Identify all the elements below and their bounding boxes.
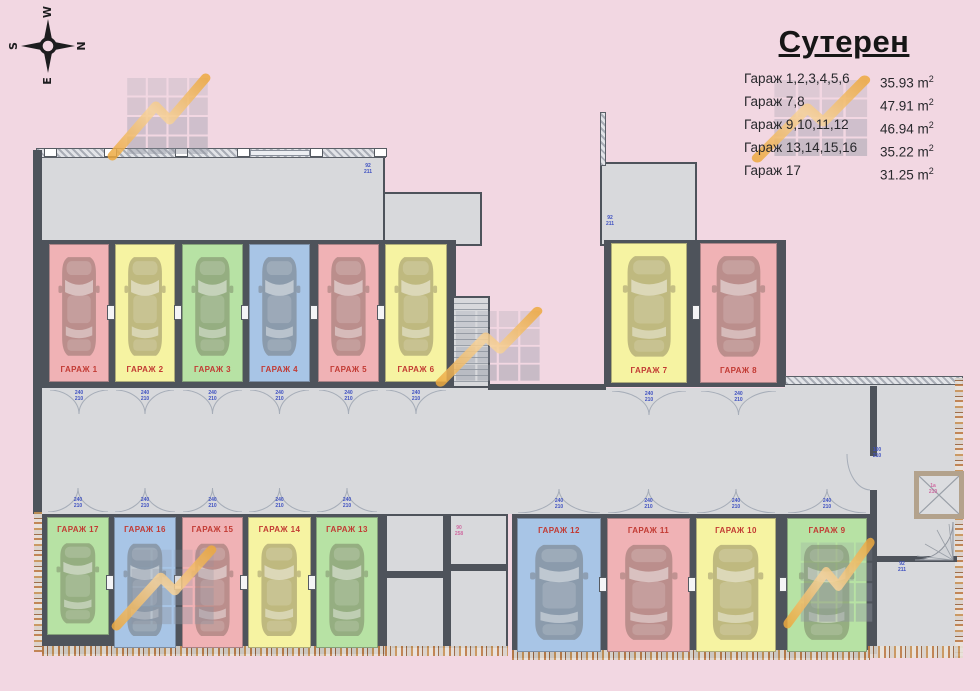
stall-divider-pillar xyxy=(174,305,182,320)
garage-door-dim-14: 240 210 xyxy=(267,498,293,509)
garage-stall-14: ГАРАЖ 14 xyxy=(248,517,311,648)
garage-stall-10: ГАРАЖ 10 xyxy=(696,518,776,652)
dim-label: 92 211 xyxy=(889,562,915,573)
dim-label: 100 210 xyxy=(864,448,890,459)
car-icon xyxy=(57,253,101,359)
garage-stall-16: ГАРАЖ 16 xyxy=(114,517,176,648)
car-icon xyxy=(324,540,370,639)
garage-label-11: ГАРАЖ 11 xyxy=(608,526,689,535)
garage-door-dim-6: 240 210 xyxy=(403,391,429,402)
car-icon xyxy=(797,541,856,643)
wall-bottom-far-right xyxy=(868,646,963,658)
garage-door-dim-16: 240 210 xyxy=(132,498,158,509)
wall-right-top xyxy=(785,376,963,385)
title-legend-block: Сутерен Гараж 1,2,3,4,5,6 35.93 m2 Гараж… xyxy=(744,24,944,185)
stall-divider-pillar xyxy=(688,577,696,592)
garage-label-8: ГАРАЖ 8 xyxy=(701,366,776,375)
garage-label-2: ГАРАЖ 2 xyxy=(116,365,174,374)
garage-label-15: ГАРАЖ 15 xyxy=(183,525,242,534)
car-icon xyxy=(257,253,302,359)
garage-label-16: ГАРАЖ 16 xyxy=(115,525,175,534)
car-icon xyxy=(393,253,439,359)
wall-pillar xyxy=(175,148,188,157)
stall-divider-pillar xyxy=(241,305,249,320)
car-icon xyxy=(122,540,168,639)
garage-door-dim-5: 240 210 xyxy=(336,391,362,402)
garage-stall-5: ГАРАЖ 5 xyxy=(318,244,379,382)
spiral-stair xyxy=(903,518,957,562)
garage-stall-11: ГАРАЖ 11 xyxy=(607,518,690,652)
legend-area-value: 35.22 m2 xyxy=(880,139,944,162)
garage-label-12: ГАРАЖ 12 xyxy=(518,526,600,535)
wall-bottom-mid xyxy=(385,646,508,656)
garage-label-5: ГАРАЖ 5 xyxy=(319,365,378,374)
garage-stall-6: ГАРАЖ 6 xyxy=(385,244,447,382)
garage-stall-12: ГАРАЖ 12 xyxy=(517,518,601,652)
legend-garage-label: Гараж 7,8 xyxy=(744,93,805,116)
garage-stall-8: ГАРАЖ 8 xyxy=(700,243,777,383)
car-icon xyxy=(190,540,235,639)
garage-door-dim-12: 240 210 xyxy=(546,499,572,510)
wall-pillar xyxy=(310,148,323,157)
garage-door-dim-11: 240 210 xyxy=(636,499,662,510)
legend-garage-label: Гараж 1,2,3,4,5,6 xyxy=(744,70,850,93)
legend-unit-sup: 2 xyxy=(929,74,934,84)
stall-divider-pillar xyxy=(106,575,114,590)
legend-area-value: 47.91 m2 xyxy=(880,93,944,116)
garage-label-1: ГАРАЖ 1 xyxy=(50,365,108,374)
stall-divider-pillar xyxy=(779,577,787,592)
car-icon xyxy=(618,541,680,643)
legend-unit-sup: 2 xyxy=(929,166,934,176)
room-top-small xyxy=(383,192,482,246)
stall-divider-pillar xyxy=(310,305,318,320)
wall-left-outer xyxy=(33,150,42,514)
garage-label-14: ГАРАЖ 14 xyxy=(249,525,310,534)
garage-stall-4: ГАРАЖ 4 xyxy=(249,244,310,382)
garage-door-dim-7: 240 210 xyxy=(636,392,662,403)
dim-label: 90 258 xyxy=(446,526,472,537)
garage-door-dim-8: 240 210 xyxy=(726,392,752,403)
car-icon xyxy=(326,253,371,359)
car-icon xyxy=(621,252,677,360)
stall-divider-pillar xyxy=(174,575,182,590)
legend-row: Гараж 9,10,11,12 46.94 m2 xyxy=(744,116,944,139)
wall-pillar xyxy=(237,148,250,157)
legend-garage-label: Гараж 9,10,11,12 xyxy=(744,116,849,139)
garage-door-dim-4: 240 210 xyxy=(267,391,293,402)
legend-row: Гараж 13,14,15,16 35.22 m2 xyxy=(744,139,944,162)
legend-area-value: 31.25 m2 xyxy=(880,162,944,185)
car-icon xyxy=(55,540,101,626)
legend-unit-sup: 2 xyxy=(929,97,934,107)
stall-divider-pillar xyxy=(308,575,316,590)
legend-row: Гараж 1,2,3,4,5,6 35.93 m2 xyxy=(744,70,944,93)
garage-label-9: ГАРАЖ 9 xyxy=(788,526,866,535)
wall-right-inner-a xyxy=(870,386,877,456)
garage-door-dim-1: 240 210 xyxy=(66,391,92,402)
stall-divider-pillar xyxy=(692,305,700,320)
garage-stall-3: ГАРАЖ 3 xyxy=(182,244,243,382)
window-top xyxy=(250,150,310,156)
garage-door-dim-10: 240 210 xyxy=(723,499,749,510)
car-icon xyxy=(528,541,590,643)
garage-stall-15: ГАРАЖ 15 xyxy=(182,517,243,648)
car-icon xyxy=(706,541,765,643)
wall-pillar xyxy=(44,148,57,157)
wall-pillar xyxy=(104,148,117,157)
garage-door-dim-3: 240 210 xyxy=(200,391,226,402)
stall-divider-pillar xyxy=(377,305,385,320)
garage-door-dim-13: 240 210 xyxy=(334,498,360,509)
car-icon xyxy=(123,253,167,359)
garage-stall-9: ГАРАЖ 9 xyxy=(787,518,867,652)
garage-label-10: ГАРАЖ 10 xyxy=(697,526,775,535)
staircase xyxy=(452,296,490,388)
dim-label: 92 211 xyxy=(597,216,623,227)
garage-label-13: ГАРАЖ 13 xyxy=(317,525,377,534)
garage-label-3: ГАРАЖ 3 xyxy=(183,365,242,374)
wall-top-outer xyxy=(36,148,386,158)
garage-stall-7: ГАРАЖ 7 xyxy=(611,243,687,383)
dim-label: 1a 210 xyxy=(920,484,946,495)
wall-right-inner-b xyxy=(870,490,877,654)
car-icon xyxy=(710,252,767,360)
room-hall-top xyxy=(38,156,385,244)
wall-left-bottom xyxy=(34,512,42,652)
room-above-garage7 xyxy=(600,162,697,246)
legend-row: Гараж 7,8 47.91 m2 xyxy=(744,93,944,116)
screenshot-root: W N E S Сутерен Гараж 1,2,3,4,5,6 35.93 … xyxy=(0,0,980,691)
garage-label-6: ГАРАЖ 6 xyxy=(386,365,446,374)
garage-label-7: ГАРАЖ 7 xyxy=(612,366,686,375)
page-title: Сутерен xyxy=(744,24,944,60)
watermark-zigzag xyxy=(112,78,205,156)
garage-door-dim-9: 240 210 xyxy=(814,499,840,510)
garage-door-dim-15: 240 210 xyxy=(200,498,226,509)
stall-divider-pillar xyxy=(599,577,607,592)
dim-label: 92 211 xyxy=(355,164,381,175)
tech-wall-h2 xyxy=(451,564,508,571)
legend: Гараж 1,2,3,4,5,6 35.93 m2 Гараж 7,8 47.… xyxy=(744,70,944,185)
garage-stall-1: ГАРАЖ 1 xyxy=(49,244,109,382)
elevator-shaft xyxy=(914,471,964,519)
garage-door-dim-2: 240 210 xyxy=(132,391,158,402)
legend-garage-label: Гараж 13,14,15,16 xyxy=(744,139,857,162)
legend-unit-sup: 2 xyxy=(929,120,934,130)
garage-stall-2: ГАРАЖ 2 xyxy=(115,244,175,382)
wall-spike xyxy=(600,112,606,166)
watermark-grid xyxy=(127,78,208,154)
stall-divider-pillar xyxy=(107,305,115,320)
legend-unit-sup: 2 xyxy=(929,143,934,153)
stall-divider-pillar xyxy=(240,575,248,590)
garage-stall-17: ГАРАЖ 17 xyxy=(47,517,109,635)
garage-door-dim-17: 240 210 xyxy=(65,498,91,509)
garage-label-17: ГАРАЖ 17 xyxy=(48,525,108,534)
elevator-cross-icon xyxy=(919,476,959,514)
legend-garage-label: Гараж 17 xyxy=(744,162,801,185)
car-icon xyxy=(256,540,302,639)
tech-wall-h1 xyxy=(385,571,443,578)
legend-row: Гараж 17 31.25 m2 xyxy=(744,162,944,185)
legend-area-value: 46.94 m2 xyxy=(880,116,944,139)
garage-label-4: ГАРАЖ 4 xyxy=(250,365,309,374)
legend-area-value: 35.93 m2 xyxy=(880,70,944,93)
garage-stall-13: ГАРАЖ 13 xyxy=(316,517,378,648)
wall-pillar xyxy=(374,148,387,157)
car-icon xyxy=(190,253,235,359)
wall-corridor-top xyxy=(488,384,606,390)
